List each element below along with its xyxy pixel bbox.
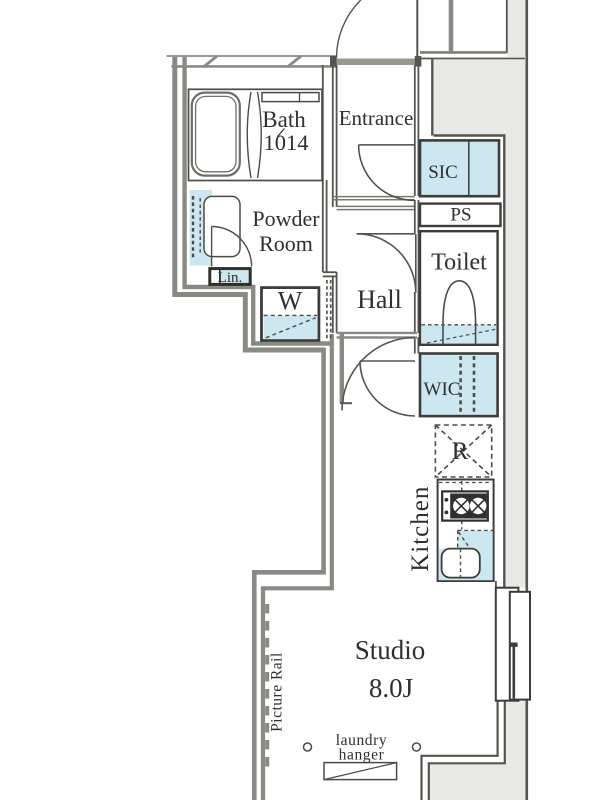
svg-text:W: W [278, 287, 303, 316]
svg-text:Toilet: Toilet [431, 250, 487, 276]
svg-text:Studio: Studio [355, 635, 426, 665]
svg-text:Bath: Bath [262, 107, 306, 132]
svg-text:PS: PS [450, 205, 471, 226]
svg-text:Powder: Powder [252, 206, 320, 231]
svg-text:Picture Rail: Picture Rail [269, 652, 286, 732]
svg-text:Hall: Hall [357, 285, 402, 314]
svg-text:Entrance: Entrance [339, 106, 414, 130]
svg-text:8.0J: 8.0J [369, 673, 413, 703]
svg-text:R: R [452, 438, 469, 465]
svg-text:Kitchen: Kitchen [407, 486, 434, 572]
svg-text:hanger: hanger [339, 747, 385, 764]
svg-text:SIC: SIC [428, 162, 458, 183]
svg-text:1014: 1014 [264, 130, 309, 155]
svg-text:Room: Room [259, 231, 313, 256]
svg-text:Lin.: Lin. [218, 270, 243, 286]
svg-text:WIC: WIC [424, 379, 461, 400]
